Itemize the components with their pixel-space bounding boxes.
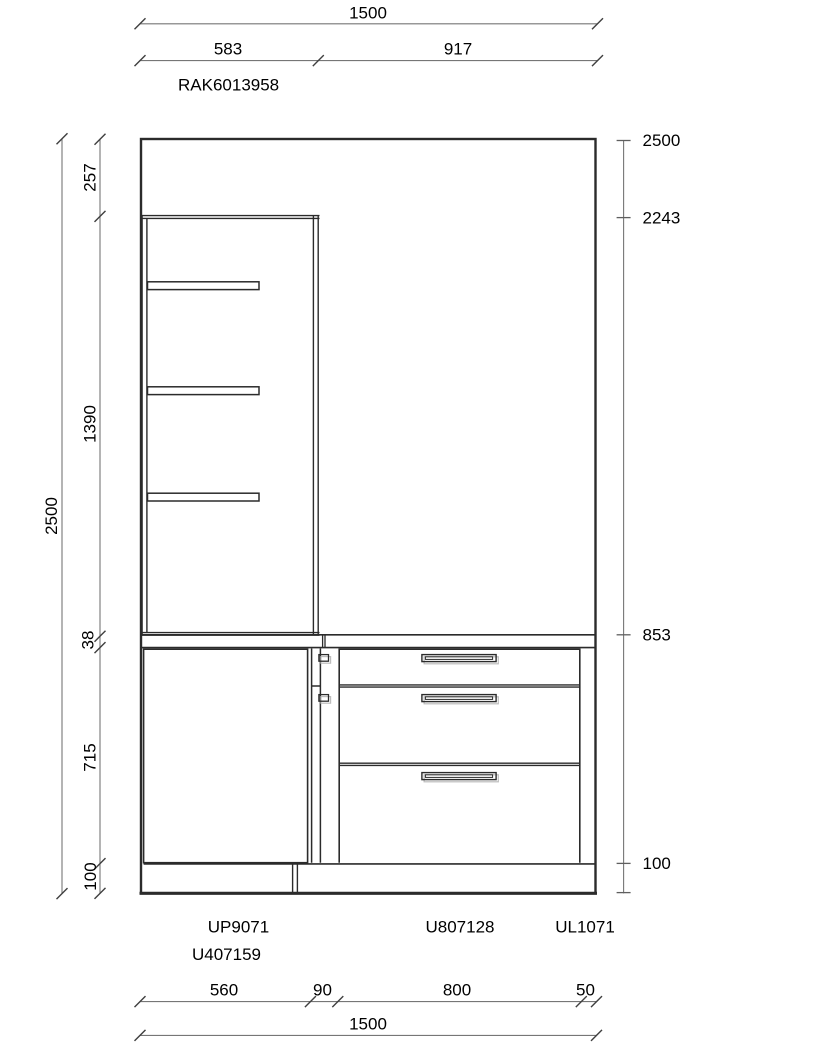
unit-label-up9071: UP9071 (208, 918, 269, 937)
product-code-label: RAK6013958 (178, 76, 279, 95)
tall-cabinet (142, 216, 320, 636)
drawer-handle (422, 773, 496, 780)
dim-bottom-50-label: 50 (576, 981, 595, 1000)
right-elevation-scale: 2500 2243 853 100 (617, 131, 681, 893)
wall-outline (140, 139, 598, 894)
shelf (148, 282, 260, 290)
cabinet-elevation-drawing: 1500 583 917 RAK6013958 (0, 0, 820, 1053)
elevation-853-label: 853 (643, 626, 671, 645)
dim-top-total-label: 1500 (349, 4, 387, 23)
dim-top-583-label: 583 (214, 40, 242, 59)
elevation-2500-label: 2500 (643, 131, 681, 150)
elevation-2243-label: 2243 (643, 209, 681, 228)
unit-label-u807128: U807128 (425, 918, 494, 937)
bottom-dimension-total: 1500 (135, 1015, 603, 1041)
dim-left-1390-label: 1390 (81, 405, 100, 443)
base-door-unit (144, 649, 308, 863)
elevation-100-label: 100 (643, 854, 671, 873)
drawer-handle (422, 695, 496, 702)
door-front (144, 649, 308, 863)
dim-left-38-label: 38 (79, 631, 98, 650)
left-dimension-chain: 257 1390 38 715 100 (79, 134, 106, 899)
narrow-unit (312, 649, 331, 863)
dim-left-715-label: 715 (81, 743, 100, 771)
dim-bottom-90-label: 90 (313, 981, 332, 1000)
plinth (144, 864, 595, 892)
unit-label-u407159: U407159 (192, 945, 261, 964)
dim-bottom-total-label: 1500 (349, 1015, 387, 1034)
shelf (148, 387, 260, 395)
worktop (141, 635, 596, 648)
drawer-handle (422, 655, 496, 662)
dim-top-917-label: 917 (444, 40, 472, 59)
dim-left-100-label: 100 (81, 862, 100, 890)
elevation-canvas: 1500 583 917 RAK6013958 (0, 0, 820, 1053)
shelf (148, 493, 260, 501)
dim-bottom-560-label: 560 (210, 981, 238, 1000)
drawer-unit (339, 649, 580, 863)
dim-left-257-label: 257 (81, 163, 100, 191)
top-dimension-total: 1500 (135, 4, 604, 30)
left-dimension-overall: 2500 (42, 133, 68, 899)
top-dimension-segments: 583 917 (135, 40, 604, 67)
unit-label-ul1071: UL1071 (555, 918, 615, 937)
dim-left-overall-label: 2500 (42, 497, 61, 535)
unit-code-labels: UP9071 U807128 UL1071 U407159 (192, 918, 615, 965)
bottom-dimension-segments: 560 90 800 50 (135, 981, 603, 1008)
dim-bottom-800-label: 800 (443, 981, 471, 1000)
